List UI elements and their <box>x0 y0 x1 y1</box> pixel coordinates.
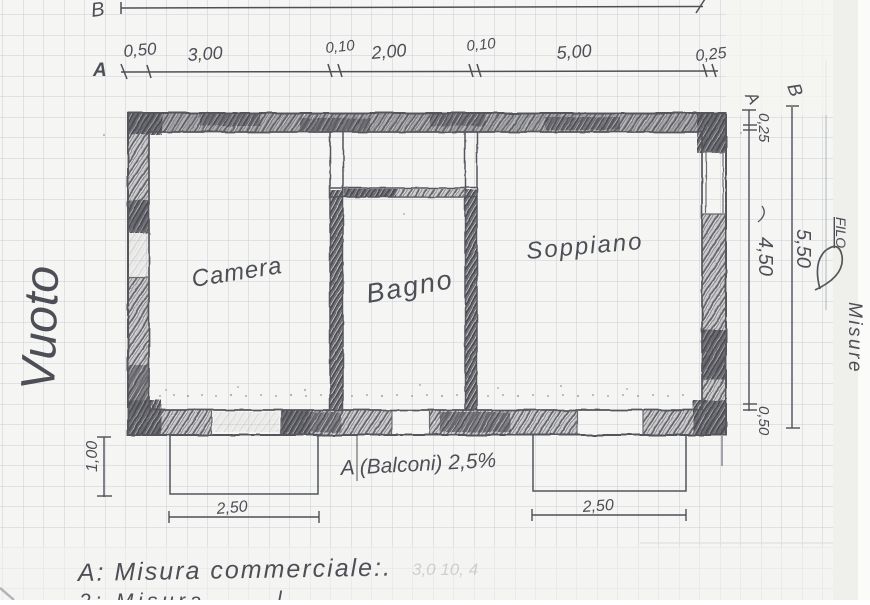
svg-text:3,00: 3,00 <box>187 43 223 65</box>
svg-text:0,25: 0,25 <box>755 113 772 143</box>
svg-text:0,50: 0,50 <box>123 39 158 61</box>
svg-text:Misure: Misure <box>844 302 865 374</box>
svg-text:3,0 10, 4: 3,0 10, 4 <box>412 560 478 579</box>
svg-text:0,10: 0,10 <box>466 35 497 55</box>
svg-text:B: B <box>90 0 106 22</box>
svg-text:A: A <box>92 60 107 81</box>
svg-text:2,50: 2,50 <box>215 498 249 518</box>
svg-text:2,00: 2,00 <box>370 40 408 63</box>
svg-text:0,50: 0,50 <box>755 406 772 436</box>
svg-text:2: Misura: 2: Misura <box>78 590 206 600</box>
svg-text:Vuoto: Vuoto <box>12 265 69 391</box>
svg-text:FILO: FILO <box>833 217 849 248</box>
svg-text:1,00: 1,00 <box>84 441 101 472</box>
svg-text:5,50: 5,50 <box>792 229 814 268</box>
svg-text:0,10: 0,10 <box>325 37 356 57</box>
svg-text:2,50: 2,50 <box>581 497 614 516</box>
svg-text:4,50: 4,50 <box>754 237 776 276</box>
svg-text:5,00: 5,00 <box>556 41 592 63</box>
svg-text:A: Misura commerciale:.: A: Misura commerciale:. <box>76 554 393 588</box>
svg-text:0,25: 0,25 <box>695 45 728 65</box>
